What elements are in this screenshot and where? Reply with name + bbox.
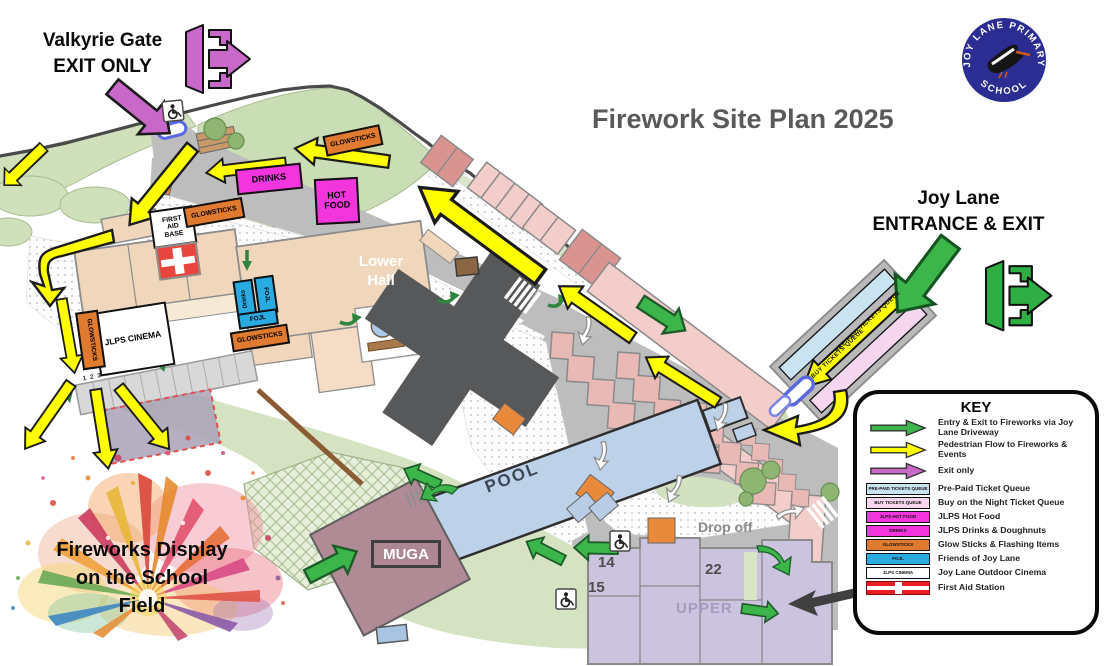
lower-hall-line1: Lower [345,253,417,272]
hot-food-swatch: JLPS HOT FOOD [866,511,930,524]
joylane-callout: Joy Lane ENTRANCE & EXIT [856,186,1061,237]
fojl-drinks-label: Drinks [240,289,249,308]
valkyrie-line1: Valkyrie Gate [10,28,195,54]
entry-exit-arrow-icon [865,418,931,438]
key-label: Buy on the Night Ticket Queue [938,498,1064,508]
wheelchair-icon [610,531,630,551]
building-22-label: 22 [705,561,722,578]
key-label: Friends of Joy Lane [938,554,1020,564]
map-key: KEY Entry & Exit to Fireworks via Joy La… [853,390,1099,635]
first-aid-line3: BASE [164,229,184,239]
lower-hall-line2: Hall [345,272,417,291]
valkyrie-line2: EXIT ONLY [10,54,195,80]
key-row: Entry & Exit to Fireworks via Joy Lane D… [865,418,1087,438]
key-label: First Aid Station [938,583,1005,593]
hot-food-line2: FOOD [324,200,350,211]
glowsticks-swatch: GLOWSTICKS [866,539,930,552]
key-row: JLPS HOT FOOD JLPS Hot Food [865,511,1087,524]
lower-hall-label: Lower Hall [345,253,417,291]
purple-exit-door-icon [186,25,250,93]
brown-store [455,257,479,276]
key-row: Exit only [865,461,1087,481]
fojl-vertical-label: FOJL [262,287,271,303]
joylane-line2: ENTRANCE & EXIT [856,212,1061,238]
key-row: JLPS CINEMA Joy Lane Outdoor Cinema [865,567,1087,580]
fireworks-callout: Fireworks Display on the School Field [28,536,256,620]
wheelchair-icon [556,589,576,609]
key-row: First Aid Station [865,581,1087,595]
key-row: GLOWSTICKS Glow Sticks & Flashing Items [865,539,1087,552]
key-label: Pre-Paid Ticket Queue [938,484,1030,494]
valkyrie-callout: Valkyrie Gate EXIT ONLY [10,28,195,79]
page-title: Firework Site Plan 2025 [592,104,894,135]
first-aid-swatch [866,581,930,595]
green-exit-door-icon [986,261,1051,330]
key-label: JLPS Hot Food [938,512,1000,522]
fireworks-line1: Fireworks Display [28,536,256,564]
prepaid-swatch: PRE-PAID TICKETS QUEUE [866,483,930,496]
hot-food-box: HOT FOOD [314,177,360,225]
key-title: KEY [865,399,1087,416]
key-label: Exit only [938,466,974,476]
key-label: Pedestrian Flow to Fireworks & Events [938,440,1087,459]
key-label: Entry & Exit to Fireworks via Joy Lane D… [938,418,1087,437]
joylane-line1: Joy Lane [856,186,1061,212]
school-logo: JOY LANE PRIMARY SCHOOL [961,17,1047,103]
key-row: Pedestrian Flow to Fireworks & Events [865,440,1087,460]
cinema-swatch: JLPS CINEMA [866,567,930,580]
building-15-label: 15 [588,579,605,596]
key-row: BUY TICKETS QUEUE Buy on the Night Ticke… [865,497,1087,510]
fojl-swatch: FOJL [866,553,930,566]
firework-site-plan: JOY LANE PRIMARY SCHOOL Firework Site Pl… [0,0,1112,666]
building-14-label: 14 [598,554,615,571]
upper-label: UPPER [676,600,733,617]
fireworks-line2: on the School [28,564,256,592]
drinks-swatch: DRINKS [866,525,930,538]
buy-swatch: BUY TICKETS QUEUE [866,497,930,510]
key-row: FOJL Friends of Joy Lane [865,553,1087,566]
dropoff-label: Drop off [698,519,752,535]
glowsticks-vertical-label: GLOWSTICKS [84,318,97,361]
key-label: Glow Sticks & Flashing Items [938,540,1059,550]
key-row: PRE-PAID TICKETS QUEUE Pre-Paid Ticket Q… [865,483,1087,496]
pedestrian-arrow-icon [865,440,931,460]
key-label: Joy Lane Outdoor Cinema [938,568,1046,578]
muga-label: MUGA [371,540,441,568]
key-label: JLPS Drinks & Doughnuts [938,526,1046,536]
wheelchair-icon [162,100,184,122]
first-aid-station [155,241,201,281]
fireworks-line3: Field [28,592,256,620]
exit-only-arrow-icon [865,461,931,481]
key-row: DRINKS JLPS Drinks & Doughnuts [865,525,1087,538]
